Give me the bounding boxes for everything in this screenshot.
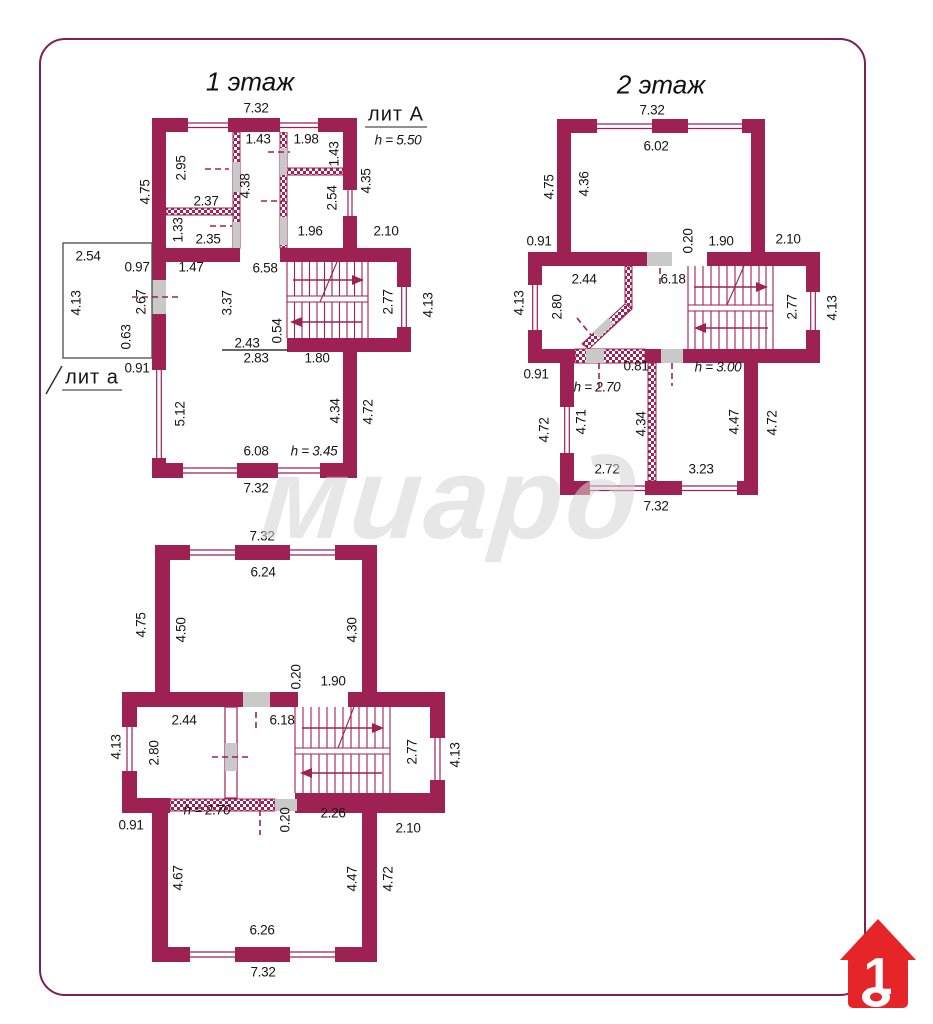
window (278, 463, 320, 478)
wall (287, 338, 411, 352)
wall (152, 314, 166, 363)
door-opening (233, 222, 240, 248)
window (806, 292, 820, 330)
wall (528, 252, 647, 266)
staircase (688, 266, 773, 349)
agency-house-logo: 1 (838, 918, 918, 1010)
wall (152, 463, 357, 478)
wall (152, 813, 168, 962)
wall (557, 119, 571, 252)
window (290, 545, 335, 560)
door-opening (280, 217, 287, 245)
window (183, 463, 237, 478)
door-opening (243, 692, 270, 707)
partition-hatch (575, 349, 645, 363)
wall (528, 349, 575, 363)
wall (122, 692, 243, 707)
window (528, 285, 542, 330)
window (560, 407, 574, 453)
floor2-plan (528, 119, 820, 495)
wall (707, 252, 820, 266)
window (290, 947, 335, 962)
door-opening (275, 799, 297, 811)
annex-lit-a (63, 243, 152, 358)
floor2-title: 2 этаж (617, 70, 705, 101)
window (682, 481, 737, 495)
door-opening (233, 162, 240, 192)
annex-label-slash (46, 366, 62, 394)
wall (343, 118, 357, 248)
window (122, 727, 137, 771)
floorplan-drawing (0, 0, 933, 1024)
wall (152, 118, 166, 248)
window (397, 287, 411, 327)
staircase (295, 707, 390, 793)
wall (152, 947, 377, 962)
partition-hatch (648, 363, 656, 481)
window (430, 738, 445, 780)
wall (122, 798, 170, 813)
wall (152, 248, 240, 262)
wall (295, 793, 445, 813)
partition-hatch (625, 266, 632, 308)
floor3-plan (122, 545, 445, 962)
wall (362, 545, 377, 692)
wall (751, 119, 765, 252)
window (190, 545, 235, 560)
partition-hatch (166, 208, 240, 215)
logo-key-hole (870, 993, 882, 1002)
wall (152, 262, 166, 280)
staircase (287, 262, 368, 338)
wall (280, 248, 411, 262)
floor1-title: 1 этаж (206, 67, 294, 98)
floorplan-page: 1 этаж 2 этаж (0, 0, 933, 1024)
wall (744, 363, 758, 495)
wall (343, 352, 357, 463)
window (190, 947, 235, 962)
window (280, 118, 318, 132)
door-opening (586, 349, 604, 363)
wall (270, 692, 298, 707)
floor1-plan (46, 118, 411, 478)
wall (152, 118, 357, 132)
window (188, 118, 228, 132)
wall (155, 545, 377, 560)
window (343, 190, 357, 216)
window (597, 119, 652, 133)
window (590, 481, 645, 495)
door-opening (647, 252, 672, 266)
wall (362, 813, 377, 962)
wall (155, 545, 170, 692)
window (152, 370, 166, 458)
window (688, 119, 742, 133)
door-opening (661, 349, 683, 363)
partition-hatch (287, 168, 343, 175)
